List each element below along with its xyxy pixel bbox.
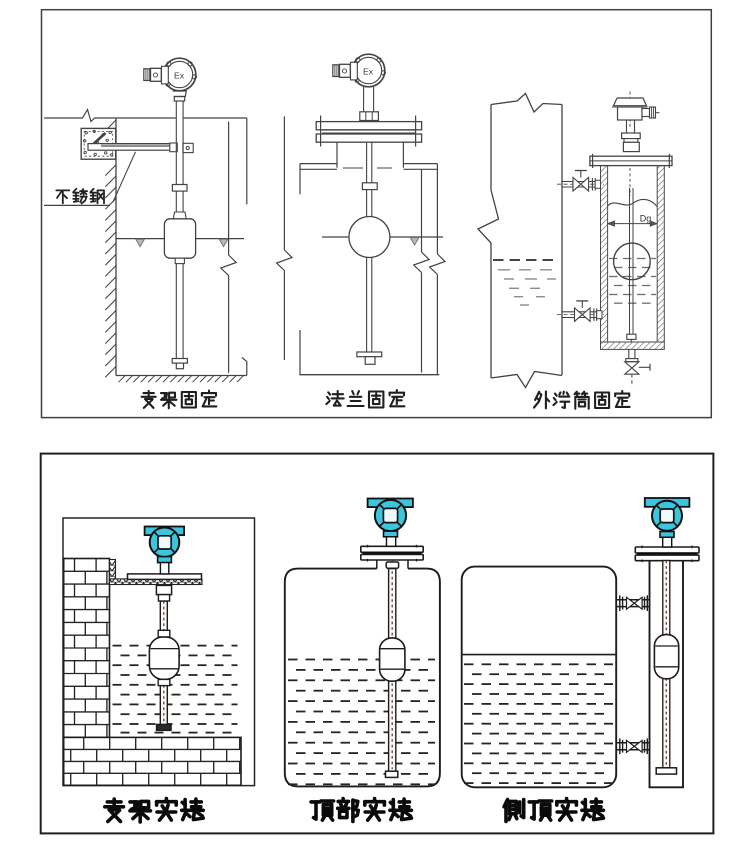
svg-text:Dg: Dg (640, 214, 652, 224)
svg-text:Ex: Ex (363, 67, 374, 77)
svg-text:Ex: Ex (174, 71, 185, 81)
